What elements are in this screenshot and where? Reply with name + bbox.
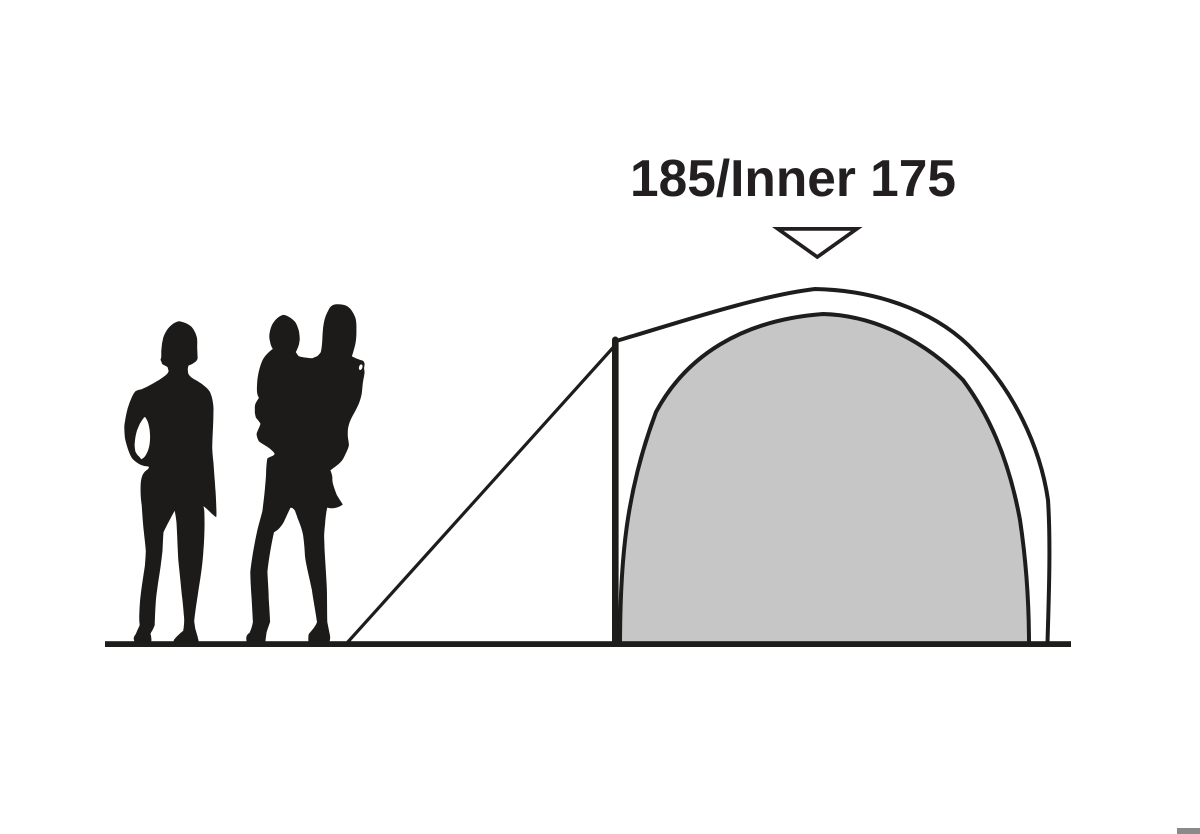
- svg-text:185/Inner 175: 185/Inner 175: [630, 149, 956, 207]
